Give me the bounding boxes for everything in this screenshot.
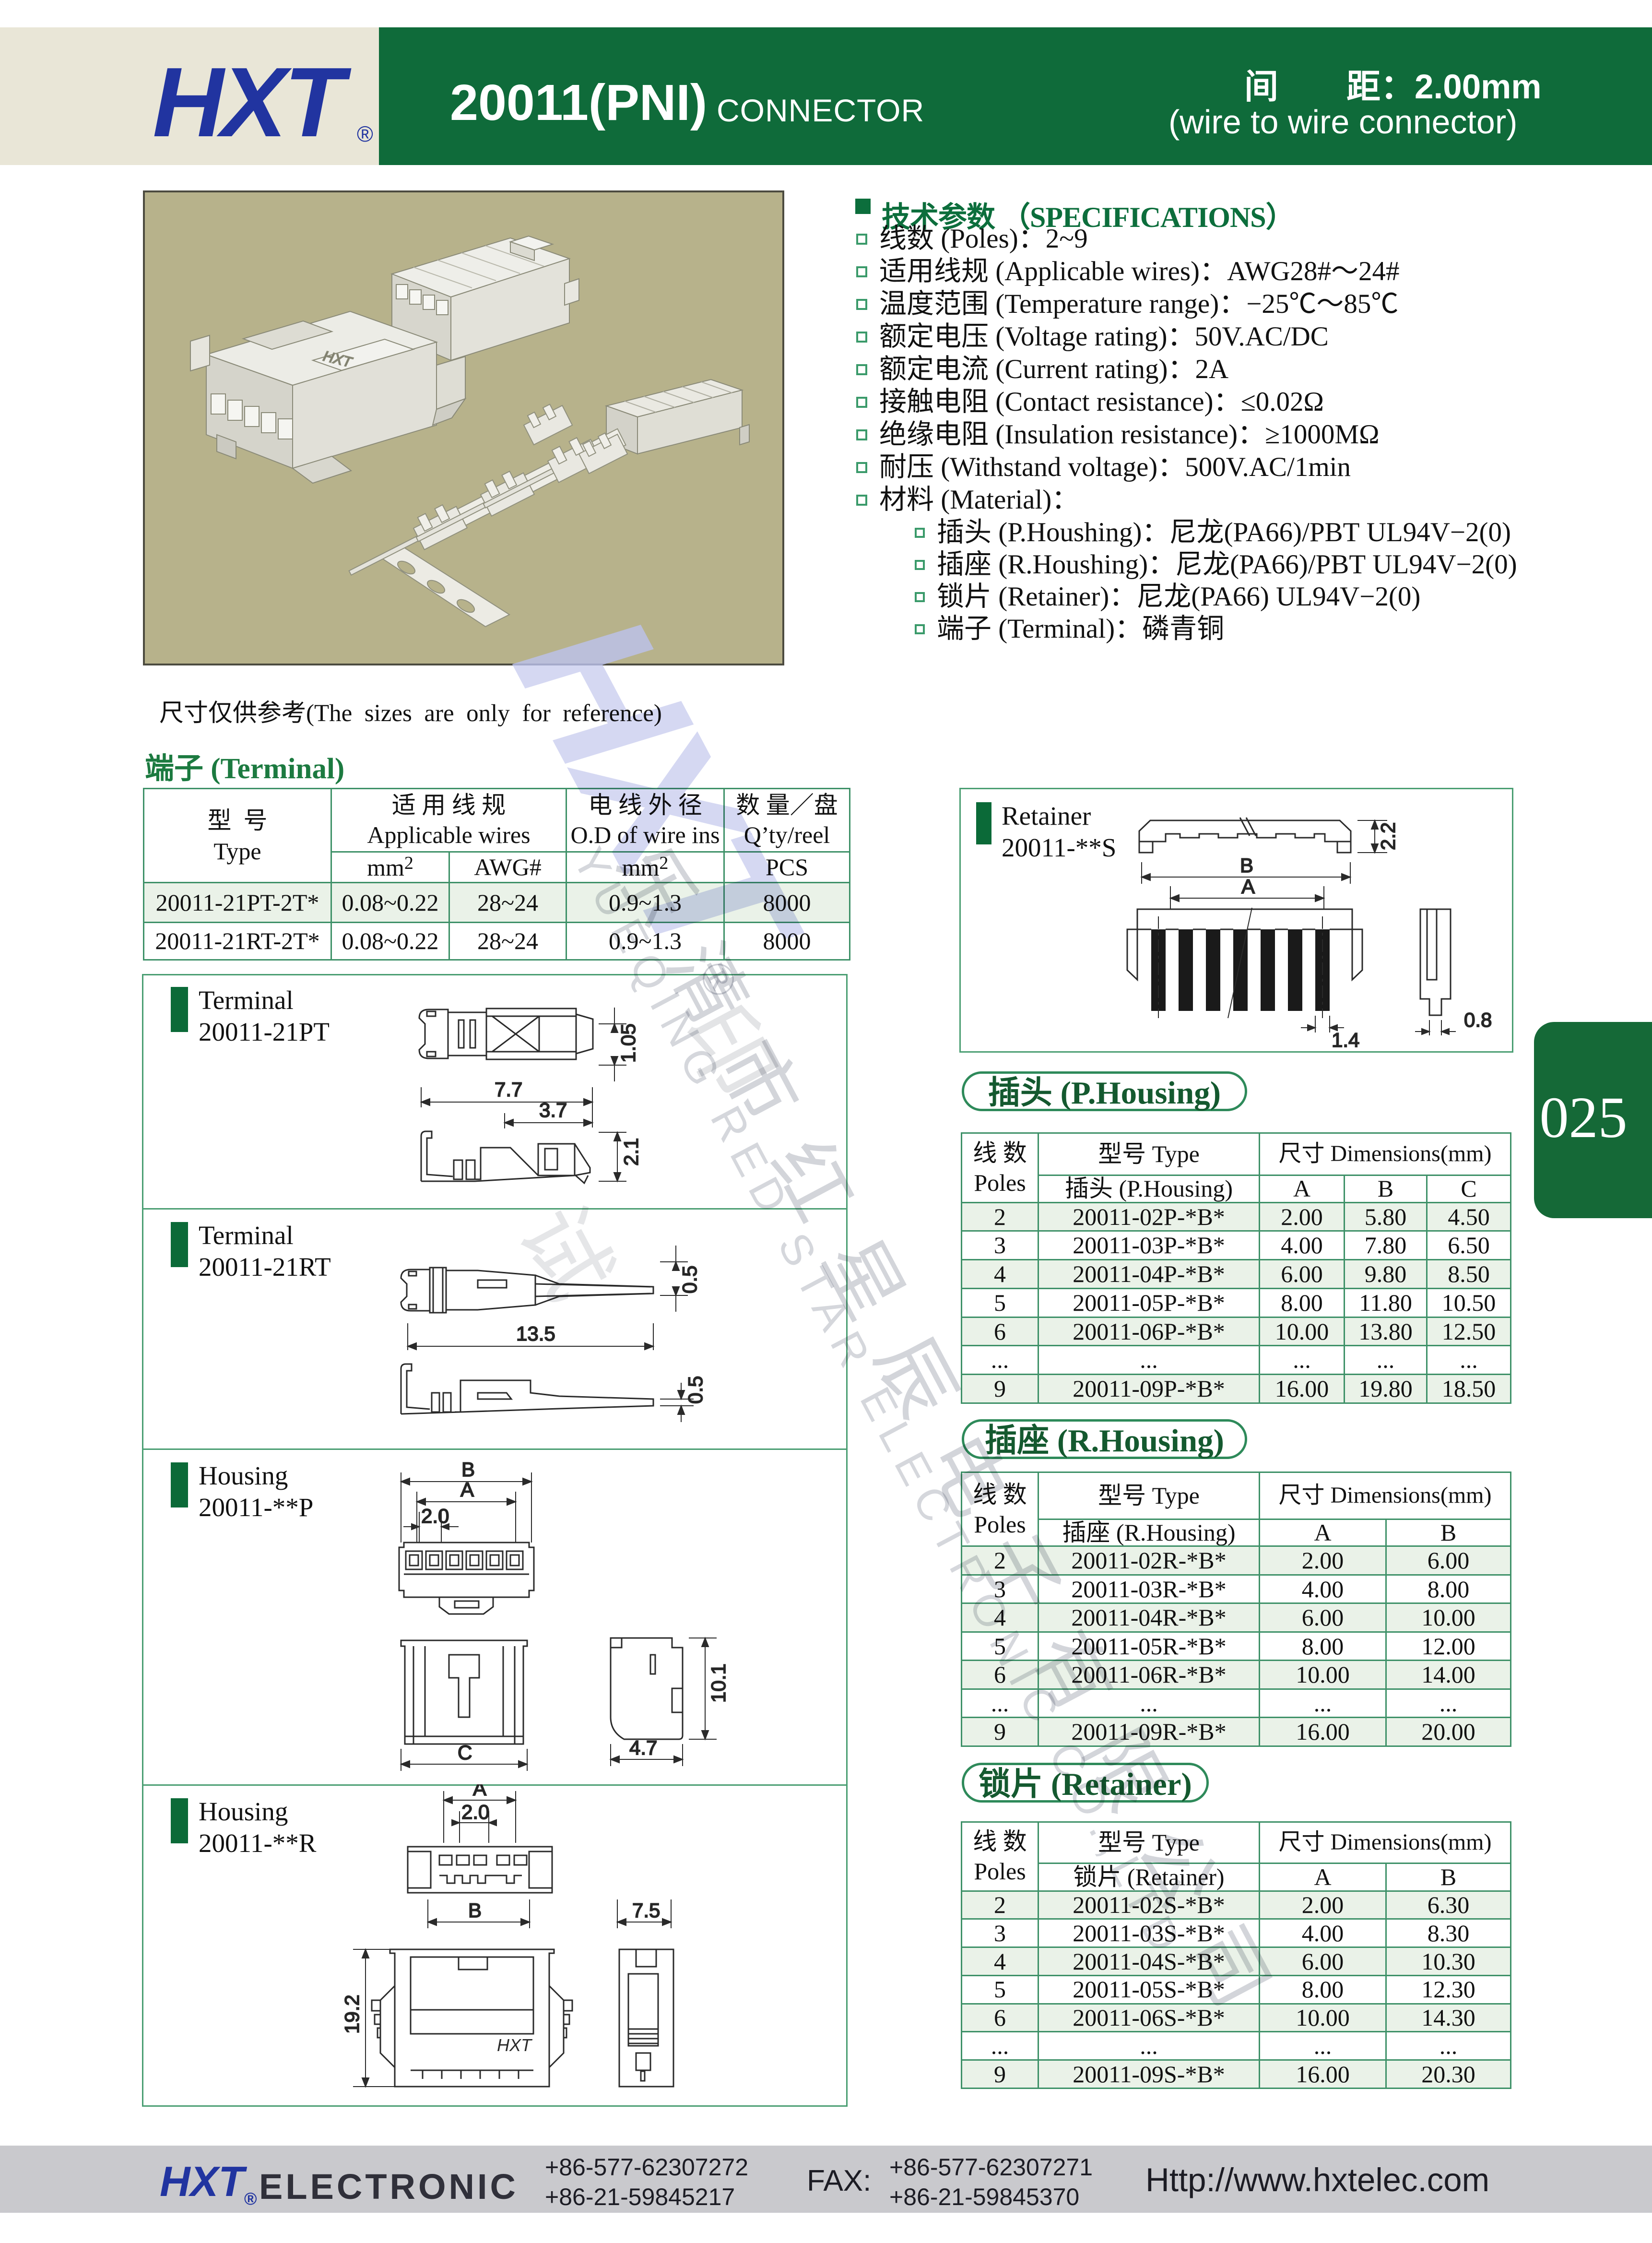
svg-text:1.4: 1.4 bbox=[1332, 1029, 1359, 1051]
svg-text:2.1: 2.1 bbox=[620, 1138, 642, 1166]
svg-text:B: B bbox=[468, 1899, 482, 1922]
svg-text:19.2: 19.2 bbox=[341, 1994, 363, 2034]
svg-text:0.5: 0.5 bbox=[684, 1376, 707, 1404]
svg-text:HXT: HXT bbox=[497, 2035, 533, 2055]
svg-text:4.7: 4.7 bbox=[629, 1736, 657, 1759]
svg-text:2.2: 2.2 bbox=[1377, 822, 1399, 850]
svg-text:7.5: 7.5 bbox=[632, 1899, 660, 1922]
svg-text:2.0: 2.0 bbox=[421, 1505, 449, 1527]
svg-text:B: B bbox=[461, 1458, 475, 1481]
svg-text:0.5: 0.5 bbox=[678, 1266, 701, 1294]
svg-text:13.5: 13.5 bbox=[516, 1322, 555, 1345]
svg-text:10.1: 10.1 bbox=[707, 1663, 730, 1703]
svg-text:1.05: 1.05 bbox=[617, 1023, 639, 1063]
svg-text:2.0: 2.0 bbox=[461, 1801, 489, 1823]
svg-text:A: A bbox=[473, 1784, 486, 1800]
svg-text:7.7: 7.7 bbox=[495, 1078, 522, 1101]
svg-text:0.8: 0.8 bbox=[1464, 1009, 1492, 1031]
svg-text:C: C bbox=[458, 1741, 472, 1764]
svg-text:3.7: 3.7 bbox=[539, 1099, 567, 1121]
svg-text:A: A bbox=[1241, 875, 1255, 898]
svg-text:B: B bbox=[1240, 854, 1253, 877]
svg-text:A: A bbox=[460, 1478, 474, 1501]
